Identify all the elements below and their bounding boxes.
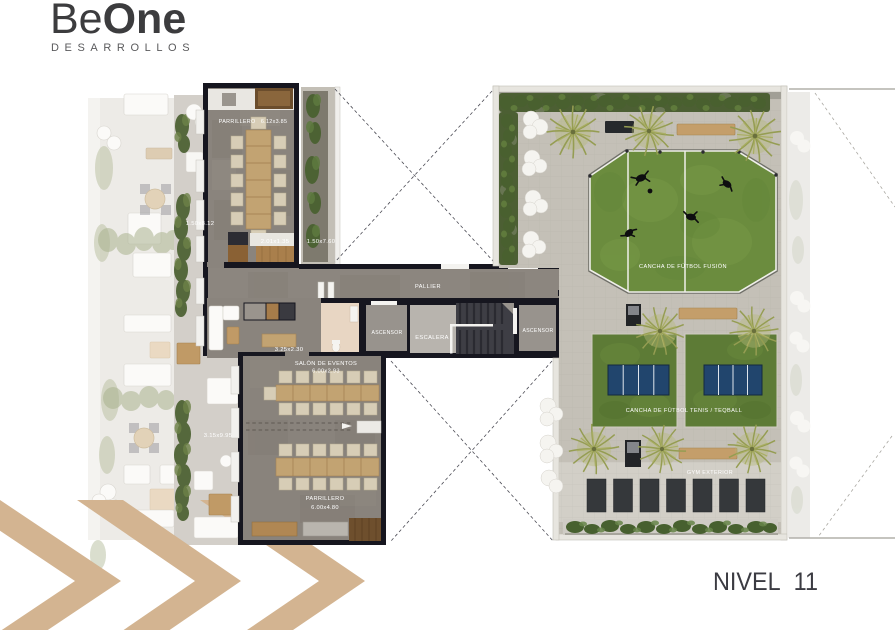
svg-text:CANCHA DE FÚTBOL FUSIÓN: CANCHA DE FÚTBOL FUSIÓN [639,263,727,270]
svg-text:PARRILLERO 6.12x3.85: PARRILLERO 6.12x3.85 [219,119,288,125]
svg-text:ASCENSOR: ASCENSOR [523,328,554,334]
svg-text:DESARROLLOS: DESARROLLOS [51,42,195,54]
svg-text:6.00x4.80: 6.00x4.80 [311,505,339,511]
svg-text:PALLIER: PALLIER [415,284,441,290]
svg-text:CANCHA DE FÚTBOL TENIS / TEQBA: CANCHA DE FÚTBOL TENIS / TEQBALL [626,407,743,414]
svg-text:1.50x8.12: 1.50x8.12 [186,221,215,227]
svg-text:NIVEL 11: NIVEL 11 [713,568,818,596]
svg-text:ASCENSOR: ASCENSOR [372,330,403,336]
svg-text:3.15x9.95: 3.15x9.95 [204,433,233,439]
svg-text:1.50x7.60: 1.50x7.60 [307,239,336,245]
svg-text:6.00x2.93: 6.00x2.93 [312,369,340,375]
svg-text:BeOne: BeOne [50,0,186,43]
svg-text:PARRILLERO: PARRILLERO [306,496,345,502]
svg-text:2.01x1.35: 2.01x1.35 [261,239,290,245]
svg-text:GYM EXTERIOR: GYM EXTERIOR [687,470,733,476]
svg-text:SALÓN DE EVENTOS: SALÓN DE EVENTOS [295,360,357,367]
svg-text:ESCALERA: ESCALERA [415,335,449,341]
